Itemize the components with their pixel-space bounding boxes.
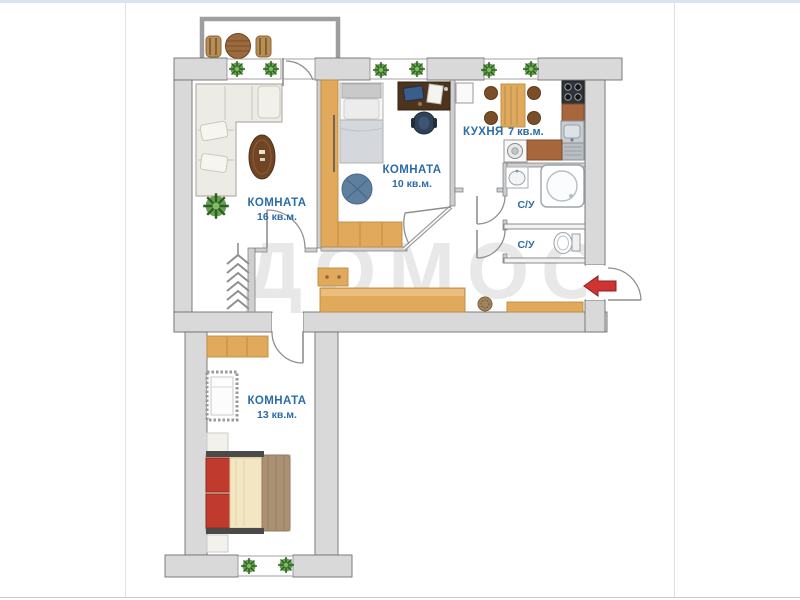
washbasin-icon <box>506 167 528 188</box>
hall-cabinet-icon <box>507 302 583 312</box>
balcony-chair-icon <box>206 36 221 57</box>
nightstand <box>207 433 228 452</box>
crib-icon <box>207 372 237 420</box>
coffee-table-icon <box>249 135 275 179</box>
desk-icon <box>398 82 450 110</box>
living-room-label: КОМНАТА <box>248 197 307 209</box>
washing-machine-icon <box>504 140 527 162</box>
round-table-icon <box>226 34 251 59</box>
top-strip <box>0 0 800 3</box>
kitchen-sink-icon <box>561 121 584 143</box>
counter-icon <box>562 104 584 121</box>
child-room-area: 13 кв.м. <box>257 409 297 421</box>
room-13 <box>206 336 290 552</box>
dining-table-icon <box>485 84 541 127</box>
room13-door-opening <box>272 313 303 331</box>
child-room-label: КОМНАТА <box>248 395 307 407</box>
hall-shoe-bench-icon <box>318 268 348 286</box>
bath-top-label: С/У <box>517 199 535 211</box>
chair-icon <box>528 112 541 125</box>
fridge-icon <box>456 83 473 103</box>
pouf-icon <box>342 174 372 204</box>
desk-chair-icon <box>411 112 437 134</box>
bedroom-label: КОМНАТА <box>383 164 442 176</box>
dishwasher-icon <box>562 143 584 160</box>
counter-icon <box>527 140 562 160</box>
balcony-living <box>202 17 338 59</box>
kitchen <box>456 81 584 162</box>
nightstand <box>207 535 228 552</box>
kitchen-label: КУХНЯ <box>463 126 504 138</box>
bath-bottom-label: С/У <box>517 239 535 251</box>
chair-icon <box>485 87 498 100</box>
plant-icon <box>203 193 229 219</box>
balcony-chair-icon <box>256 36 271 57</box>
bedroom-area: 10 кв.м. <box>392 178 432 190</box>
chair-icon <box>485 112 498 125</box>
double-bed-icon <box>206 451 290 534</box>
balcony-door-opening <box>283 59 315 79</box>
living-room-area: 16 кв.м. <box>257 211 297 223</box>
bath-top-door-arc <box>477 196 505 224</box>
floorplan-image: ДОМОС CLUB <box>0 0 800 600</box>
wardrobe-icon <box>338 222 402 247</box>
wardrobe-icon <box>207 336 268 357</box>
stool-icon <box>478 297 492 311</box>
chair-icon <box>528 87 541 100</box>
stove-icon <box>562 81 584 104</box>
wardrobe-icon <box>321 80 338 247</box>
kitchen-area: 7 кв.м. <box>508 126 544 138</box>
room13-door-arc <box>272 332 303 363</box>
toilet-icon <box>554 233 580 254</box>
bathtub-icon <box>541 165 584 207</box>
single-bed-icon <box>340 83 383 163</box>
floorplan-page: ДОМОС CLUB <box>0 0 800 600</box>
